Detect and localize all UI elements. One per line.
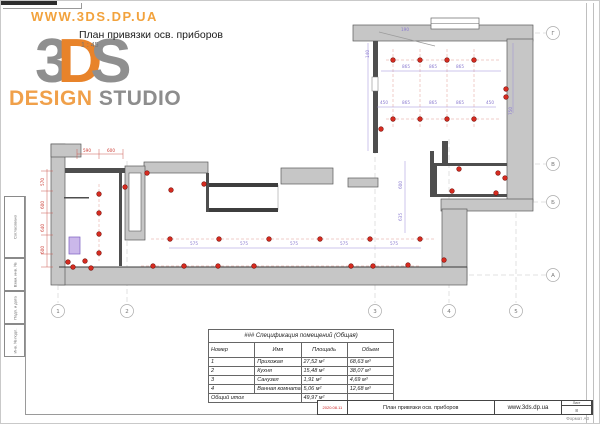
cell-name: Санузел <box>255 376 301 385</box>
cell-area: 1,91 м² <box>301 376 347 385</box>
sheet-number: 8 <box>575 406 578 414</box>
dim-label: 575 <box>290 241 298 246</box>
light-fixture <box>418 117 423 122</box>
total-label: Общий итог <box>209 394 302 403</box>
dim-label: 190 <box>401 27 409 32</box>
dim-label: 865 <box>402 100 410 105</box>
light-fixture <box>445 117 450 122</box>
dim-label: 865 <box>456 100 464 105</box>
light-fixture <box>371 264 376 269</box>
light-fixture <box>169 188 174 193</box>
light-fixture <box>504 87 509 92</box>
light-fixture <box>168 237 173 242</box>
dim-label: 635 <box>398 213 403 221</box>
spec-col-area: Площадь <box>301 343 347 358</box>
light-fixture <box>267 237 272 242</box>
light-fixture <box>318 237 323 242</box>
dim-label: 865 <box>429 64 437 69</box>
dim-label: 640 <box>40 224 45 232</box>
light-fixture <box>418 58 423 63</box>
spec-row: 4 Ванная комната 5,06 м² 12,68 м³ <box>209 385 394 394</box>
title-block-site: www.3ds.dp.ua <box>495 401 563 414</box>
grid-row-label: А <box>551 273 555 279</box>
grid-row-label: В <box>551 162 555 168</box>
light-fixture <box>379 127 384 132</box>
vent-shaft <box>129 173 141 231</box>
light-fixture <box>83 259 88 264</box>
light-fixture <box>450 189 455 194</box>
grid-col-label: 5 <box>514 309 518 315</box>
cell-volume: 12,68 м³ <box>347 385 393 394</box>
light-fixture <box>97 192 102 197</box>
drawing-sheet: WWW.3DS.DP.UA 3DS DESIGN STUDIO План при… <box>0 0 600 424</box>
light-fixture <box>368 237 373 242</box>
cell-area: 15,48 м² <box>301 367 347 376</box>
light-fixture <box>217 237 222 242</box>
dim-label: 575 <box>190 241 198 246</box>
light-fixture <box>391 58 396 63</box>
grid-col-label: 4 <box>447 309 451 315</box>
dim-label: 865 <box>456 64 464 69</box>
dim-label: 575 <box>240 241 248 246</box>
cell-number: 4 <box>209 385 255 394</box>
door-leaf <box>372 77 378 91</box>
closet <box>206 173 278 212</box>
dim-label: 600 <box>107 148 115 153</box>
light-fixture <box>494 191 499 196</box>
light-fixture <box>349 264 354 269</box>
dim-label: 570 <box>40 178 45 186</box>
light-fixture <box>182 264 187 269</box>
title-block-date: 2020.08.11 <box>318 401 348 414</box>
spec-row: 1 Прихожая 27,52 м² 68,63 м³ <box>209 358 394 367</box>
light-fixture <box>252 264 257 269</box>
spec-col-name: Имя <box>255 343 301 358</box>
light-fixture <box>97 251 102 256</box>
title-block: 2020.08.11 План привязки осв. приборов w… <box>317 400 593 415</box>
grid-col-label: 1 <box>56 309 60 315</box>
cell-volume: 68,63 м³ <box>347 358 393 367</box>
light-fixture <box>472 58 477 63</box>
light-fixture <box>202 182 207 187</box>
window <box>431 18 479 29</box>
plan-scale: 1 : 45 <box>81 42 99 49</box>
cell-volume: 4,69 м³ <box>347 376 393 385</box>
dim-label: 865 <box>402 64 410 69</box>
light-fixture <box>97 211 102 216</box>
light-fixture <box>97 232 102 237</box>
dim-label: 750 <box>508 107 513 115</box>
light-fixture <box>145 171 150 176</box>
cell-name: Прихожая <box>255 358 301 367</box>
title-block-doc-title: План привязки осв. приборов <box>348 401 495 414</box>
plan-title: План привязки осв. приборов <box>79 29 223 41</box>
dim-label: 590 <box>83 148 91 153</box>
light-fixture <box>71 265 76 270</box>
dim-label: 600 <box>40 201 45 209</box>
spec-row: 3 Санузел 1,91 м² 4,69 м³ <box>209 376 394 385</box>
light-fixture <box>123 185 128 190</box>
cell-area: 27,52 м² <box>301 358 347 367</box>
dim-label: 575 <box>340 241 348 246</box>
spec-row: 2 Кухня 15,48 м² 38,07 м³ <box>209 367 394 376</box>
grid-col-label: 3 <box>373 309 377 315</box>
grid-col-label: 2 <box>125 309 129 315</box>
spec-table-title: ### Спецификация помещений (Общая) <box>209 330 394 343</box>
light-fixture <box>472 117 477 122</box>
cell-name: Кухня <box>255 367 301 376</box>
dim-label: 140 <box>365 50 370 58</box>
light-fixture <box>66 260 71 265</box>
light-fixture <box>445 58 450 63</box>
light-fixture <box>89 266 94 271</box>
dim-label: 450 <box>486 100 494 105</box>
light-fixture <box>406 263 411 268</box>
light-fixture <box>442 258 447 263</box>
light-fixture <box>457 167 462 172</box>
format-note: Формат А3 <box>566 416 589 421</box>
light-fixture <box>418 237 423 242</box>
dim-label: 575 <box>390 241 398 246</box>
cell-number: 3 <box>209 376 255 385</box>
spec-col-volume: Объем <box>347 343 393 358</box>
light-fixture <box>391 117 396 122</box>
light-fixture <box>216 264 221 269</box>
spec-table: ### Спецификация помещений (Общая) Номер… <box>208 329 394 403</box>
title-block-sheet: Лист 8 <box>562 401 592 414</box>
light-fixture <box>496 171 501 176</box>
fixture-guides <box>99 49 501 266</box>
light-fixture <box>151 264 156 269</box>
cell-number: 2 <box>209 367 255 376</box>
cell-volume: 38,07 м³ <box>347 367 393 376</box>
spec-col-number: Номер <box>209 343 255 358</box>
light-fixture <box>503 176 508 181</box>
dim-label: 600 <box>40 246 45 254</box>
grid-row-label: Б <box>551 200 555 206</box>
dim-label: 450 <box>380 100 388 105</box>
appliance <box>69 237 80 254</box>
cell-name: Ванная комната <box>255 385 301 394</box>
dim-label: 865 <box>429 100 437 105</box>
light-fixture <box>504 95 509 100</box>
cell-area: 5,06 м² <box>301 385 347 394</box>
cell-number: 1 <box>209 358 255 367</box>
dim-label: 600 <box>398 181 403 189</box>
